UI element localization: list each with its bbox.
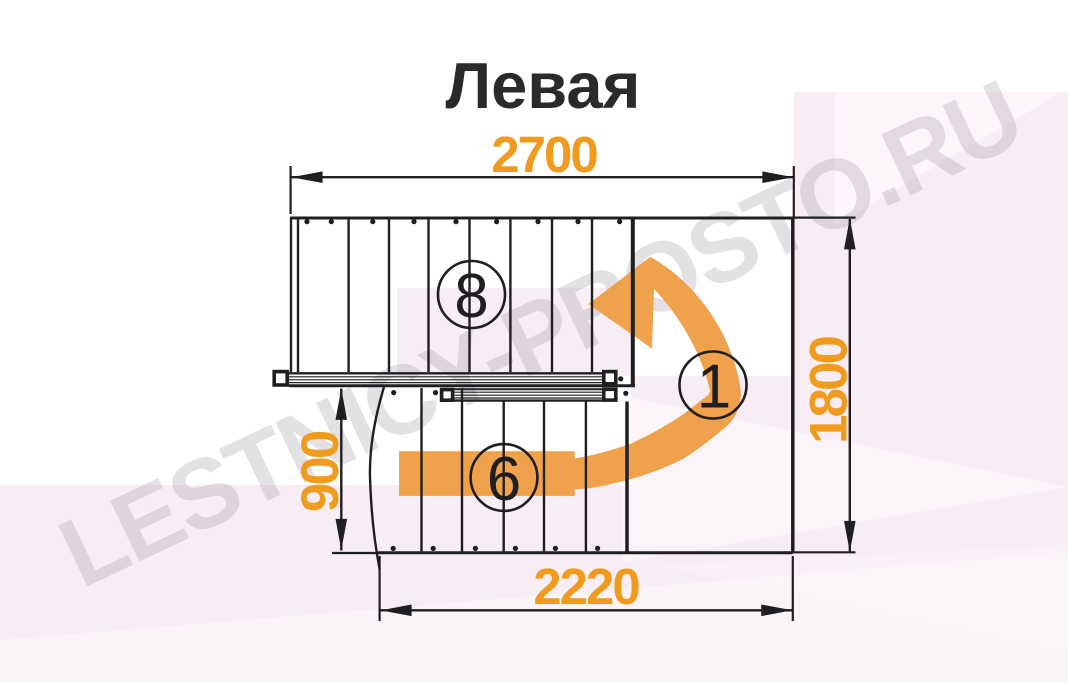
svg-text:8: 8: [454, 262, 488, 331]
svg-text:Левая: Левая: [446, 49, 641, 122]
svg-text:1: 1: [697, 353, 731, 422]
svg-text:6: 6: [487, 445, 521, 514]
svg-text:2700: 2700: [491, 126, 597, 183]
svg-text:2220: 2220: [533, 558, 639, 615]
